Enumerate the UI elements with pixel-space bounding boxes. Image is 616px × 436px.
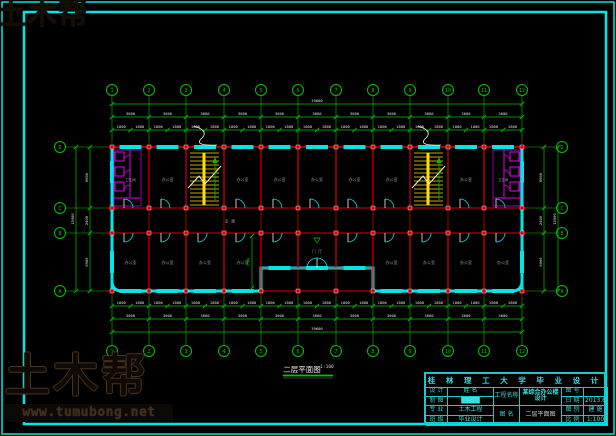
room-label: 办公室 bbox=[497, 259, 509, 265]
dim-text: 1800 bbox=[470, 124, 480, 129]
dim-text: 1800 bbox=[247, 300, 257, 305]
room-label: 走 廊 bbox=[225, 218, 235, 224]
column-marker bbox=[147, 145, 151, 149]
dim-text: 3600 bbox=[461, 313, 471, 318]
grid-bubble-top-label: 6 bbox=[296, 88, 299, 94]
title-block-header: 桂 林 理 工 大 学 毕 业 设 计 bbox=[426, 374, 604, 388]
column-marker bbox=[296, 145, 300, 149]
dim-text: 1800 bbox=[470, 300, 480, 305]
column-marker bbox=[110, 289, 114, 293]
window bbox=[492, 289, 514, 293]
dim-text: 3600 bbox=[200, 313, 210, 318]
column-marker bbox=[147, 206, 151, 210]
column-marker bbox=[259, 289, 263, 293]
tb-label: 图 别 bbox=[562, 406, 584, 416]
column-marker bbox=[408, 289, 412, 293]
grid-bubble-bottom-label: 3 bbox=[184, 349, 187, 355]
window bbox=[269, 145, 291, 149]
dim-text: 1800 bbox=[396, 124, 406, 129]
column-marker bbox=[408, 231, 412, 235]
column-marker bbox=[184, 289, 188, 293]
grid-bubble-top-label: 2 bbox=[147, 88, 150, 94]
door-swing bbox=[236, 233, 245, 242]
dim-text: 1800 bbox=[154, 124, 164, 129]
grid-bubble-bottom-label: 8 bbox=[371, 349, 374, 355]
room-label: 卫生间 bbox=[498, 177, 509, 182]
dim-text: 1800 bbox=[284, 124, 294, 129]
dim-text: 3600 bbox=[350, 111, 360, 116]
door-swing bbox=[124, 199, 133, 208]
window bbox=[110, 161, 114, 183]
column-marker bbox=[184, 231, 188, 235]
column-marker bbox=[334, 231, 338, 235]
grid-bubble-bottom-label: 12 bbox=[519, 349, 525, 355]
dim-text: 3600 bbox=[312, 313, 322, 318]
stair-arrow-head bbox=[437, 157, 442, 163]
dim-text: 1800 bbox=[172, 300, 182, 305]
dim-text: 1800 bbox=[341, 300, 351, 305]
dim-text: 15900 bbox=[552, 213, 557, 225]
column-marker bbox=[222, 231, 226, 235]
column-marker bbox=[296, 206, 300, 210]
window bbox=[520, 251, 524, 273]
dim-text: 1800 bbox=[117, 300, 127, 305]
dim-text: 1800 bbox=[154, 300, 164, 305]
room-label: 办公室 bbox=[423, 259, 435, 265]
window bbox=[157, 289, 179, 293]
window bbox=[455, 145, 477, 149]
dim-text: 3600 bbox=[163, 111, 173, 116]
column-marker bbox=[334, 145, 338, 149]
column-marker bbox=[184, 145, 188, 149]
dim-text: 1800 bbox=[191, 300, 201, 305]
door-swing bbox=[348, 199, 357, 208]
room-label: 办公室 bbox=[460, 259, 472, 265]
dim-text: 1800 bbox=[266, 124, 276, 129]
column-marker bbox=[147, 289, 151, 293]
dim-text: 1800 bbox=[135, 124, 145, 129]
column-marker bbox=[110, 145, 114, 149]
tb-drawing-value: 二层平面图 bbox=[520, 406, 562, 425]
dim-text: 1800 bbox=[434, 124, 444, 129]
door-swing bbox=[273, 199, 282, 208]
dim-text: 6600 bbox=[538, 172, 543, 182]
room-label: 办公室 bbox=[349, 176, 361, 182]
room-label: 办公室 bbox=[237, 259, 249, 265]
door-swing bbox=[161, 199, 170, 208]
column-marker bbox=[259, 231, 263, 235]
dim-text: 3600 bbox=[424, 313, 434, 318]
door-swing bbox=[310, 199, 319, 208]
room-label: 卫生间 bbox=[125, 177, 136, 182]
window bbox=[120, 145, 142, 149]
toilet-stall bbox=[510, 167, 519, 176]
tb-label: 专 业 bbox=[426, 406, 448, 416]
door-swing bbox=[198, 233, 207, 242]
grid-bubble-top-label: 5 bbox=[259, 88, 262, 94]
grid-bubble-top-label: 9 bbox=[408, 88, 411, 94]
tb-value: 毕业设计 bbox=[448, 416, 494, 426]
dim-text: 15900 bbox=[70, 213, 75, 225]
tb-label: 日 期 bbox=[562, 397, 584, 407]
window bbox=[232, 145, 254, 149]
dim-text: 3600 bbox=[387, 111, 397, 116]
dim-text: 1800 bbox=[229, 124, 239, 129]
dim-text: 3600 bbox=[238, 111, 248, 116]
grid-bubble-bottom-label: 6 bbox=[296, 349, 299, 355]
dim-text: 39600 bbox=[311, 98, 323, 103]
dim-text: 2400 bbox=[538, 215, 543, 225]
column-marker bbox=[222, 145, 226, 149]
dim-text: 1800 bbox=[508, 124, 518, 129]
dim-text: 1800 bbox=[247, 124, 257, 129]
tb-label: 图 号 bbox=[562, 387, 584, 397]
column-marker bbox=[482, 231, 486, 235]
grid-bubble-bottom-label: 5 bbox=[259, 349, 262, 355]
window bbox=[110, 251, 114, 273]
watermark-url: www.tumubong.net bbox=[5, 404, 173, 422]
window bbox=[269, 266, 291, 270]
stair-stringer bbox=[203, 153, 206, 205]
tb-project-label: 工程名称 bbox=[494, 387, 520, 406]
dim-text: 39600 bbox=[311, 326, 323, 331]
room-label: 办公室 bbox=[386, 176, 398, 182]
column-marker bbox=[520, 289, 524, 293]
grid-bubble-top-label: 1 bbox=[110, 88, 113, 94]
column-marker bbox=[408, 206, 412, 210]
dim-text: 1800 bbox=[303, 300, 313, 305]
door-swing bbox=[385, 233, 394, 242]
dim-text: 1800 bbox=[359, 300, 369, 305]
dim-text: 1800 bbox=[508, 300, 518, 305]
dim-text: 3600 bbox=[498, 111, 508, 116]
column-marker bbox=[520, 145, 524, 149]
column-marker bbox=[482, 206, 486, 210]
grid-bubble-bottom-label: 7 bbox=[334, 349, 337, 355]
room-label: 门 厅 bbox=[312, 248, 322, 254]
grid-bubble-top-label: 8 bbox=[371, 88, 374, 94]
door-swing bbox=[385, 199, 394, 208]
door-swing bbox=[273, 233, 282, 242]
dim-text: 1800 bbox=[452, 124, 462, 129]
dim-text: 1800 bbox=[489, 124, 499, 129]
door-swing bbox=[161, 233, 170, 242]
grid-bubble-top-label: 3 bbox=[184, 88, 187, 94]
dim-text: 1800 bbox=[229, 300, 239, 305]
column-marker bbox=[482, 145, 486, 149]
grid-bubble-left-label: C bbox=[58, 206, 61, 212]
room-label: 办公室 bbox=[311, 176, 323, 182]
tb-value: 1:100 bbox=[584, 416, 608, 426]
dim-text: 3600 bbox=[312, 111, 322, 116]
dim-text: 2400 bbox=[84, 215, 89, 225]
tb-drawing-label: 图 名 bbox=[494, 406, 520, 425]
column-marker bbox=[259, 145, 263, 149]
window bbox=[157, 145, 179, 149]
toilet-stall bbox=[115, 152, 124, 161]
toilet-stall-door bbox=[124, 170, 130, 176]
grid-bubble-left-label: D bbox=[58, 145, 61, 151]
grid-bubble-bottom-label: 11 bbox=[481, 349, 487, 355]
room-label: 办公室 bbox=[274, 176, 286, 182]
column-marker bbox=[222, 289, 226, 293]
window bbox=[381, 289, 403, 293]
dim-text: 1800 bbox=[489, 300, 499, 305]
column-marker bbox=[446, 231, 450, 235]
column-marker bbox=[446, 289, 450, 293]
dim-text: 1800 bbox=[135, 300, 145, 305]
room-label: 办公室 bbox=[162, 176, 174, 182]
column-marker bbox=[296, 289, 300, 293]
dim-text: 1800 bbox=[172, 124, 182, 129]
column-marker bbox=[334, 289, 338, 293]
tb-label: 班 级 bbox=[426, 416, 448, 426]
tb-label: 比 例 bbox=[562, 416, 584, 426]
column-marker bbox=[446, 145, 450, 149]
caption-title: 二层平面图 bbox=[283, 365, 321, 374]
door-swing bbox=[422, 233, 431, 242]
window bbox=[306, 145, 328, 149]
column-marker bbox=[520, 206, 524, 210]
column-marker bbox=[296, 231, 300, 235]
grid-bubble-bottom-label: 10 bbox=[445, 349, 451, 355]
column-marker bbox=[259, 206, 263, 210]
room-label: 办公室 bbox=[386, 259, 398, 265]
room-label: 办公室 bbox=[199, 259, 211, 265]
dim-text: 3600 bbox=[461, 111, 471, 116]
window bbox=[520, 161, 524, 183]
toilet-stall bbox=[115, 167, 124, 176]
dim-text: 3600 bbox=[126, 111, 136, 116]
door-swing bbox=[496, 199, 505, 208]
level-marker-icon bbox=[314, 238, 320, 243]
column-marker bbox=[371, 289, 375, 293]
dim-text: 3600 bbox=[275, 111, 285, 116]
toilet-stall bbox=[510, 152, 519, 161]
grid-bubble-right-label: C bbox=[560, 206, 563, 212]
dim-text: 1800 bbox=[117, 124, 127, 129]
column-marker bbox=[371, 231, 375, 235]
drawing-caption: 二层平面图 1:100 bbox=[283, 364, 334, 378]
dim-text: 3600 bbox=[350, 313, 360, 318]
grid-bubble-bottom-label: 4 bbox=[222, 349, 225, 355]
window bbox=[418, 145, 440, 149]
dim-text: 1800 bbox=[378, 124, 388, 129]
dim-text: 1800 bbox=[266, 300, 276, 305]
dim-text: 6900 bbox=[84, 257, 89, 267]
tb-value: 土木工程 bbox=[448, 406, 494, 416]
exterior-wall-bottom bbox=[112, 268, 522, 291]
dim-text: 3600 bbox=[238, 313, 248, 318]
column-marker bbox=[520, 231, 524, 235]
column-marker bbox=[184, 206, 188, 210]
door-swing bbox=[236, 199, 245, 208]
grid-bubble-top-label: 10 bbox=[445, 88, 451, 94]
toilet-stall-door bbox=[504, 170, 510, 176]
grid-bubble-top-label: 12 bbox=[519, 88, 525, 94]
dim-text: 1800 bbox=[210, 124, 220, 129]
dim-text: 6900 bbox=[538, 257, 543, 267]
dim-text: 1800 bbox=[210, 300, 220, 305]
door-swing bbox=[124, 233, 133, 242]
watermark-brand: 土木帮 bbox=[5, 353, 149, 398]
toilet-stall-door bbox=[124, 185, 130, 191]
grid-bubble-top-label: 4 bbox=[222, 88, 225, 94]
toilet-stall bbox=[510, 182, 519, 191]
column-marker bbox=[482, 289, 486, 293]
tb-label: 制 图 bbox=[426, 397, 448, 407]
toilet-stall-door bbox=[124, 155, 130, 161]
window bbox=[418, 289, 440, 293]
grid-bubble-right-label: A bbox=[560, 289, 563, 295]
grid-bubble-top-label: 11 bbox=[481, 88, 487, 94]
tb-value: 建 施 bbox=[584, 406, 608, 416]
stair-stringer bbox=[427, 153, 430, 205]
window bbox=[194, 145, 216, 149]
window bbox=[194, 289, 216, 293]
window bbox=[120, 289, 142, 293]
tb-value bbox=[584, 387, 608, 397]
dim-text: 1800 bbox=[322, 124, 332, 129]
tb-value: 2013.6 bbox=[584, 397, 608, 407]
dim-text: 1800 bbox=[396, 300, 406, 305]
window bbox=[344, 145, 366, 149]
dim-text: 1800 bbox=[434, 300, 444, 305]
column-marker bbox=[222, 206, 226, 210]
toilet-stall-door bbox=[504, 155, 510, 161]
column-marker bbox=[408, 145, 412, 149]
column-marker bbox=[110, 206, 114, 210]
cad-sheet: 112233445566778899101011111212DDCCBBAA18… bbox=[0, 0, 616, 436]
toilet-stall-door bbox=[504, 185, 510, 191]
door-swing bbox=[460, 199, 469, 208]
room-label: 办公室 bbox=[162, 259, 174, 265]
dim-text: 1800 bbox=[303, 124, 313, 129]
grid-bubble-left-label: B bbox=[58, 231, 61, 237]
toilet-stall bbox=[115, 182, 124, 191]
tb-label: 设 计 bbox=[426, 387, 448, 397]
caption-scale: 1:100 bbox=[320, 364, 334, 370]
column-marker bbox=[110, 231, 114, 235]
door-swing bbox=[348, 233, 357, 242]
grid-bubble-top-label: 7 bbox=[334, 88, 337, 94]
dim-text: 3600 bbox=[200, 111, 210, 116]
title-block: 桂 林 理 工 大 学 毕 业 设 计 设 计姓 名制 图████专 业土木工程… bbox=[424, 372, 606, 424]
door-swing bbox=[496, 233, 505, 242]
grid-bubble-right-label: D bbox=[560, 145, 563, 151]
room-label: 办公室 bbox=[237, 176, 249, 182]
dim-text: 1800 bbox=[341, 124, 351, 129]
dim-text: 3600 bbox=[424, 111, 434, 116]
tb-value: ████ bbox=[448, 397, 494, 407]
dim-text: 3600 bbox=[387, 313, 397, 318]
dim-text: 1800 bbox=[322, 300, 332, 305]
grid-bubble-bottom-label: 9 bbox=[408, 349, 411, 355]
watermark-brand-top: 土木帮 bbox=[0, 0, 89, 33]
tb-project-value: 某综合办公楼设计 bbox=[520, 387, 562, 406]
dim-text: 1800 bbox=[452, 300, 462, 305]
dim-text: 1800 bbox=[359, 124, 369, 129]
tb-value: 姓 名 bbox=[448, 387, 494, 397]
dim-text: 3600 bbox=[163, 313, 173, 318]
dim-text: 3600 bbox=[275, 313, 285, 318]
grid-bubble-right-label: B bbox=[560, 231, 563, 237]
dim-text: 1800 bbox=[378, 300, 388, 305]
column-marker bbox=[147, 231, 151, 235]
room-label: 办公室 bbox=[125, 259, 137, 265]
dim-text: 6600 bbox=[84, 172, 89, 182]
dim-text: 3600 bbox=[498, 313, 508, 318]
column-marker bbox=[371, 145, 375, 149]
window bbox=[455, 289, 477, 293]
column-marker bbox=[446, 206, 450, 210]
stair-arrow-head bbox=[213, 157, 218, 163]
window bbox=[492, 145, 514, 149]
column-marker bbox=[334, 206, 338, 210]
grid-bubble-left-label: A bbox=[58, 289, 61, 295]
room-label: 办公室 bbox=[460, 176, 472, 182]
column-marker bbox=[371, 206, 375, 210]
window bbox=[381, 145, 403, 149]
dim-text: 1800 bbox=[415, 300, 425, 305]
window bbox=[344, 266, 366, 270]
door-swing bbox=[460, 233, 469, 242]
dim-text: 1800 bbox=[284, 300, 294, 305]
dim-text: 3600 bbox=[126, 313, 136, 318]
